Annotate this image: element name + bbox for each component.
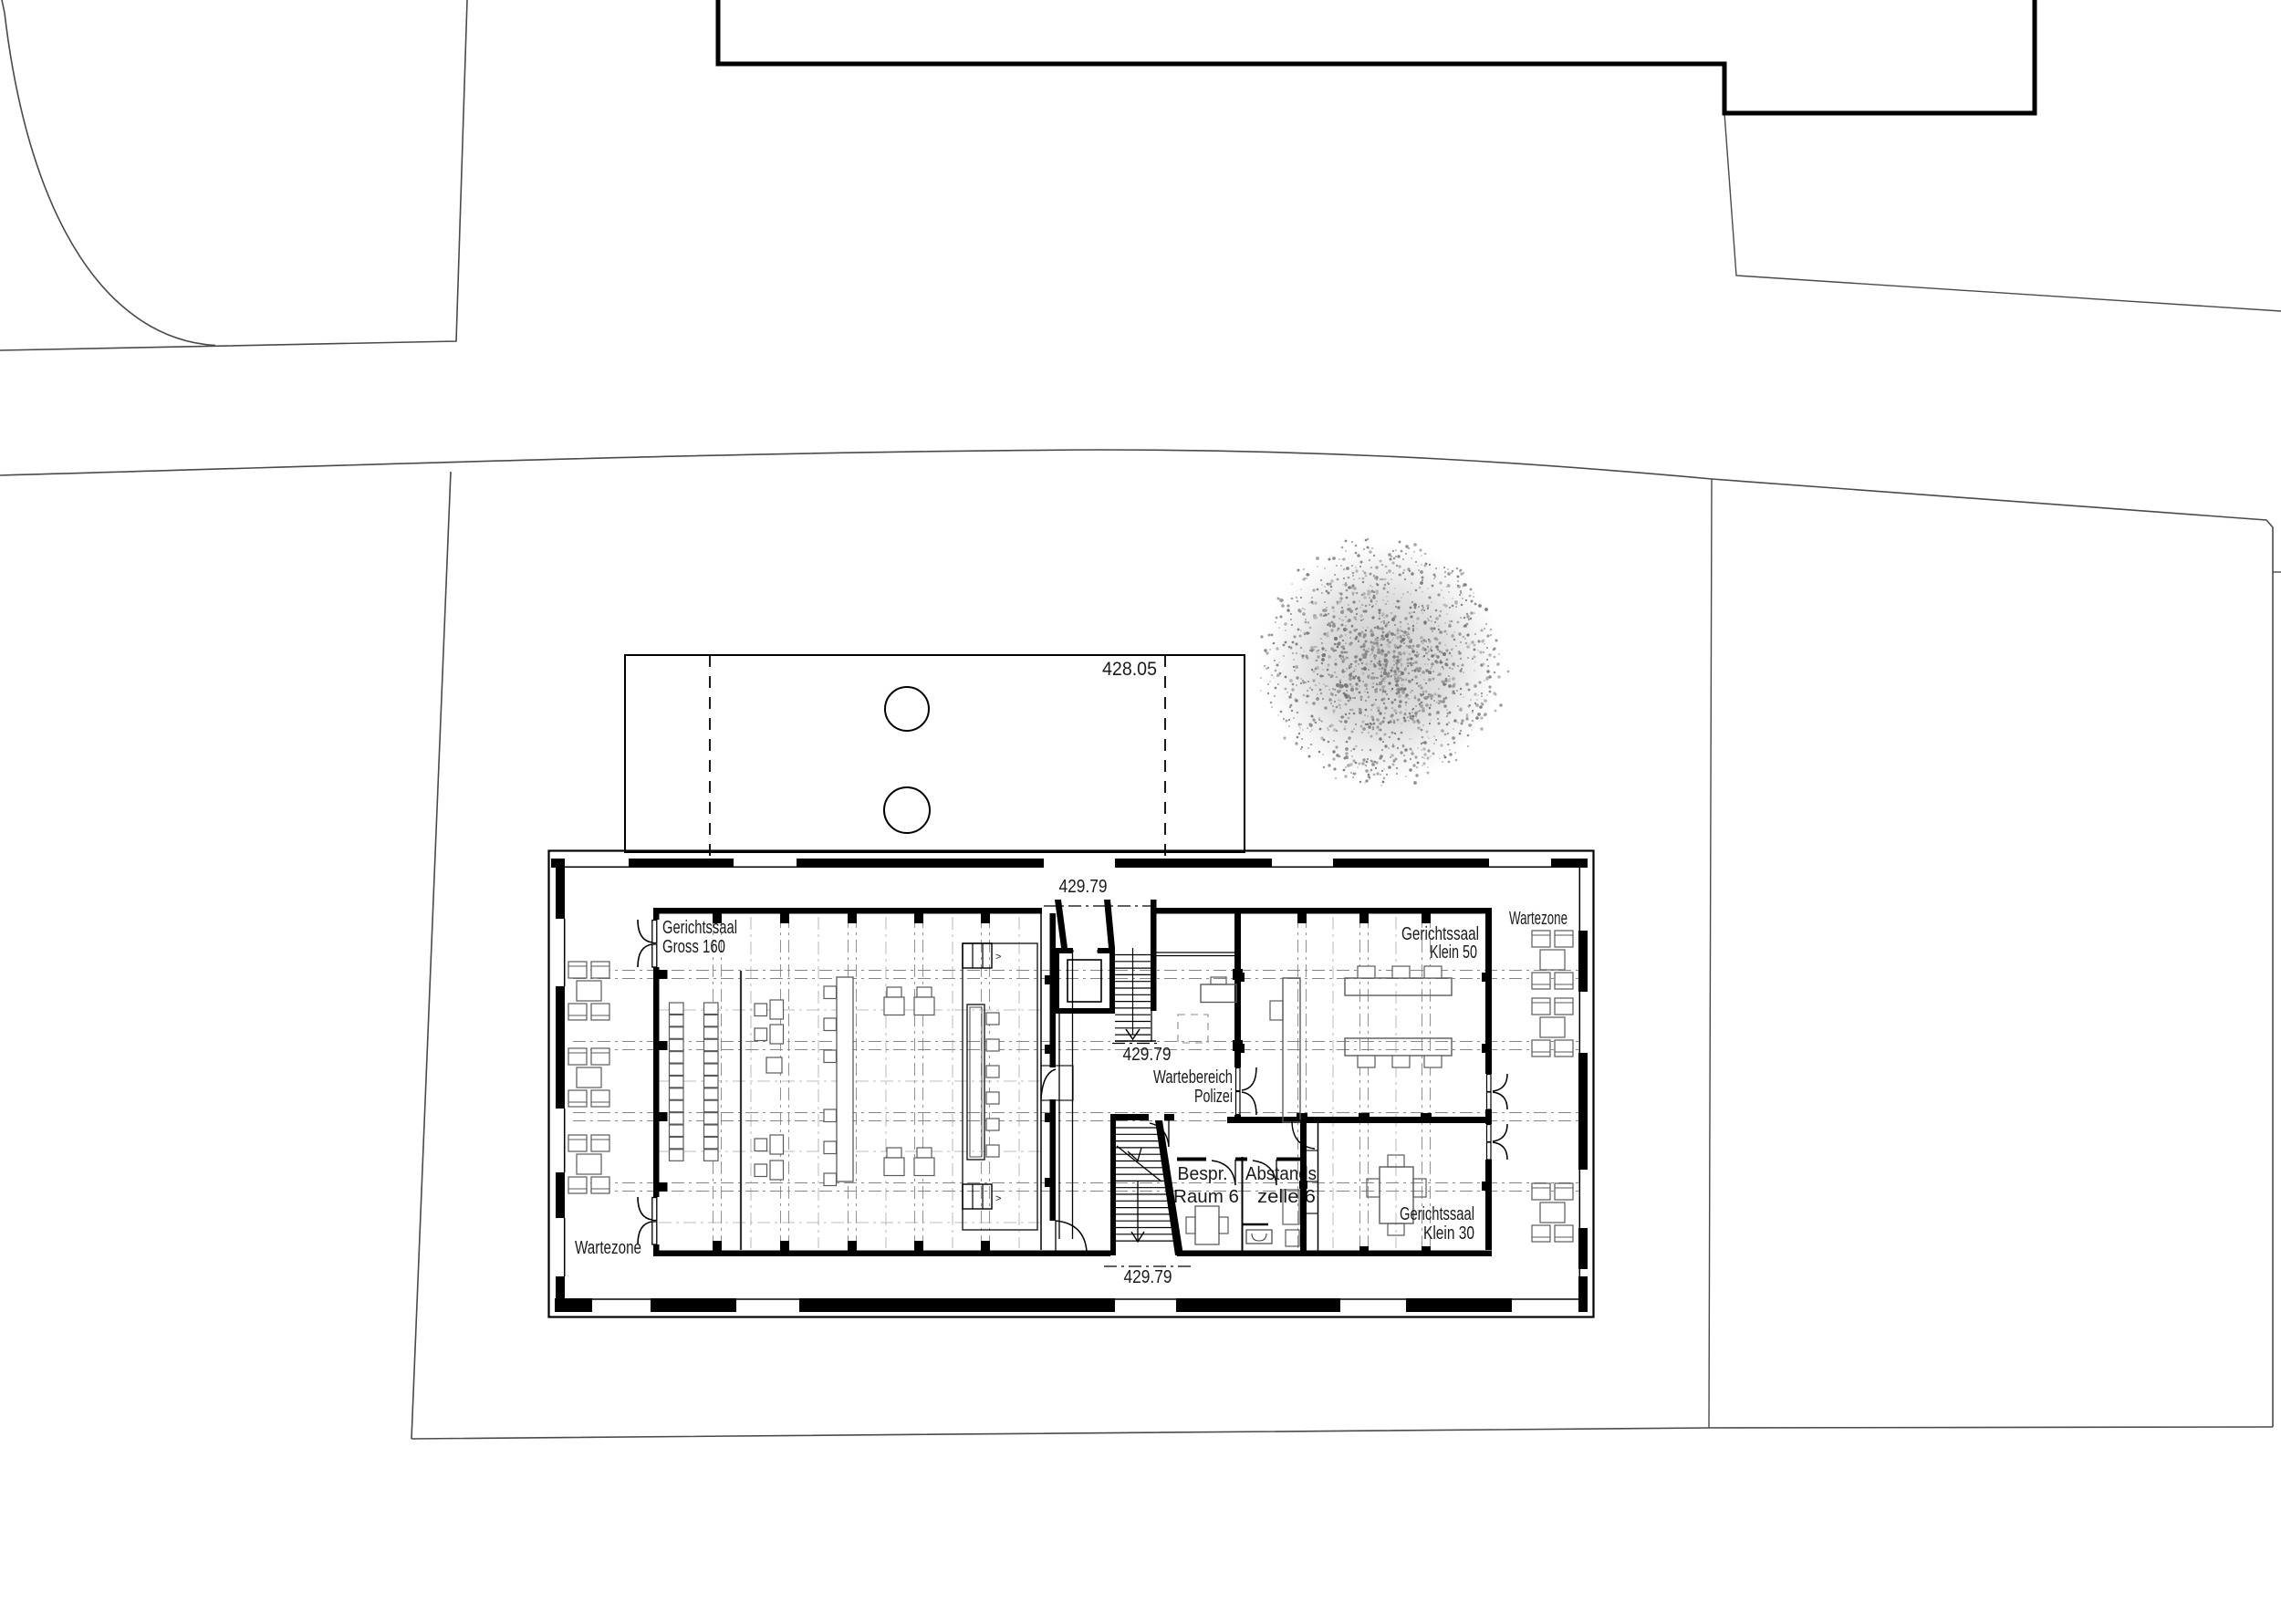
svg-text:Wartezone: Wartezone <box>575 1238 641 1258</box>
svg-text:Gerichtssaal: Gerichtssaal <box>662 918 737 938</box>
svg-text:>: > <box>995 952 1001 963</box>
svg-text:Bespr.: Bespr. <box>1178 1164 1228 1184</box>
svg-text:428.05: 428.05 <box>1102 659 1157 680</box>
svg-text:>: > <box>995 1193 1001 1204</box>
svg-text:429.79: 429.79 <box>1059 877 1108 897</box>
svg-text:Gerichtssaal: Gerichtssaal <box>1401 924 1479 944</box>
svg-text:429.79: 429.79 <box>1123 1045 1172 1065</box>
svg-text:Wartebereich: Wartebereich <box>1153 1067 1233 1088</box>
svg-text:Wartezone: Wartezone <box>1509 909 1568 929</box>
svg-text:Gerichtssaal: Gerichtssaal <box>1400 1204 1474 1224</box>
svg-text:429.79: 429.79 <box>1124 1267 1172 1287</box>
svg-text:Klein 30: Klein 30 <box>1423 1223 1474 1244</box>
svg-text:Raum 6: Raum 6 <box>1173 1187 1239 1207</box>
svg-text:Polizei: Polizei <box>1194 1087 1233 1107</box>
svg-text:Gross 160: Gross 160 <box>662 937 725 957</box>
svg-text:Klein 50: Klein 50 <box>1430 942 1477 963</box>
